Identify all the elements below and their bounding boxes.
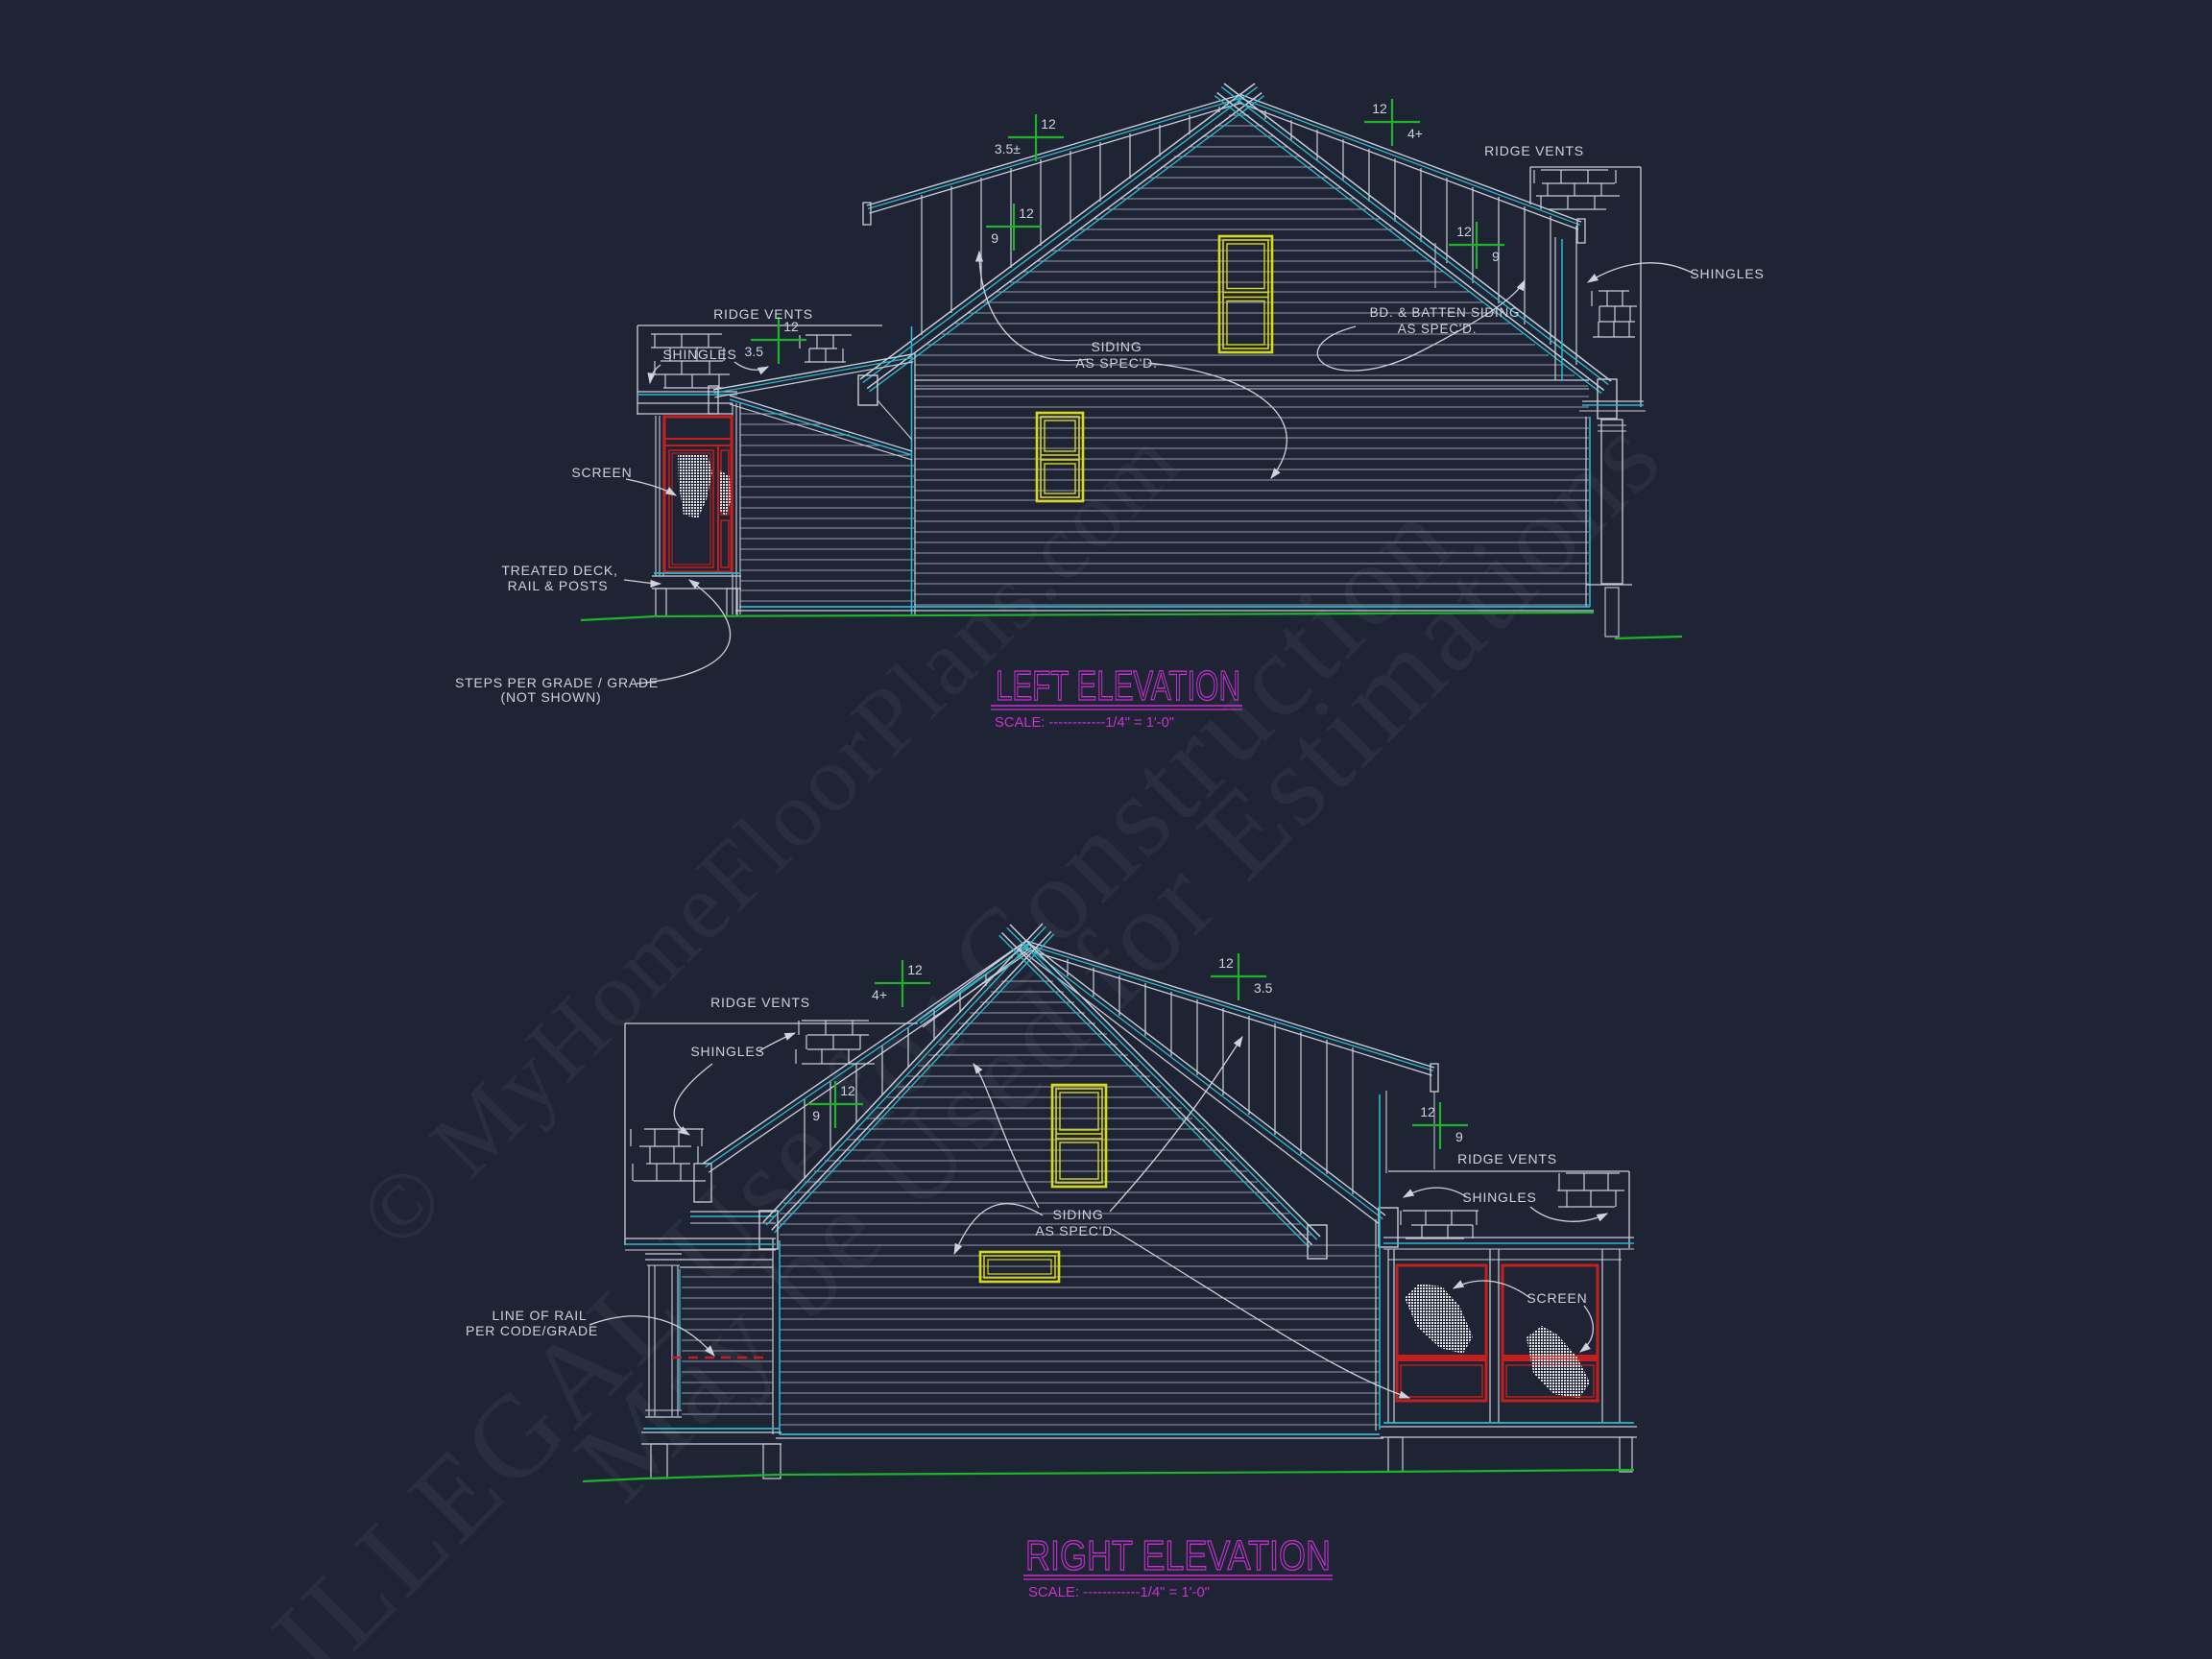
svg-text:SCREEN: SCREEN bbox=[1527, 1290, 1587, 1306]
svg-text:9: 9 bbox=[812, 1108, 820, 1123]
svg-text:RAIL & POSTS: RAIL & POSTS bbox=[508, 578, 609, 593]
svg-text:9: 9 bbox=[1455, 1129, 1463, 1144]
svg-text:RIGHT ELEVATION: RIGHT ELEVATION bbox=[1025, 1532, 1331, 1579]
svg-text:12: 12 bbox=[1019, 205, 1034, 221]
svg-text:12: 12 bbox=[1456, 224, 1472, 239]
svg-text:RIDGE VENTS: RIDGE VENTS bbox=[1484, 143, 1584, 158]
svg-text:AS SPEC'D.: AS SPEC'D. bbox=[1398, 322, 1478, 336]
svg-text:RIDGE VENTS: RIDGE VENTS bbox=[713, 306, 813, 322]
svg-text:AS SPEC'D.: AS SPEC'D. bbox=[1075, 355, 1157, 371]
svg-text:LEFT ELEVATION: LEFT ELEVATION bbox=[996, 662, 1240, 709]
svg-text:LINE OF RAIL: LINE OF RAIL bbox=[492, 1308, 587, 1323]
svg-text:PER CODE/GRADE: PER CODE/GRADE bbox=[466, 1323, 598, 1338]
svg-text:SCREEN: SCREEN bbox=[571, 465, 632, 480]
svg-text:SHINGLES: SHINGLES bbox=[690, 1044, 764, 1059]
svg-text:12: 12 bbox=[840, 1083, 855, 1098]
svg-text:9: 9 bbox=[991, 230, 998, 246]
svg-text:12: 12 bbox=[1372, 101, 1387, 116]
svg-text:3.5±: 3.5± bbox=[995, 141, 1021, 156]
svg-text:RIDGE VENTS: RIDGE VENTS bbox=[1457, 1151, 1557, 1166]
svg-text:TREATED DECK,: TREATED DECK, bbox=[501, 563, 617, 578]
svg-text:AS SPEC'D.: AS SPEC'D. bbox=[1035, 1223, 1117, 1238]
svg-text:(NOT SHOWN): (NOT SHOWN) bbox=[501, 689, 602, 705]
svg-text:3.5: 3.5 bbox=[745, 344, 764, 359]
svg-text:SHINGLES: SHINGLES bbox=[1690, 266, 1764, 281]
svg-text:12: 12 bbox=[1420, 1104, 1435, 1119]
svg-text:SIDING: SIDING bbox=[1091, 339, 1142, 354]
svg-text:RIDGE VENTS: RIDGE VENTS bbox=[710, 995, 810, 1010]
svg-text:12: 12 bbox=[1041, 116, 1056, 132]
svg-text:SCALE: ------------1/4" = 1'-0: SCALE: ------------1/4" = 1'-0" bbox=[995, 714, 1174, 731]
svg-text:SHINGLES: SHINGLES bbox=[1462, 1190, 1536, 1205]
svg-text:SHINGLES: SHINGLES bbox=[662, 347, 736, 362]
svg-text:4+: 4+ bbox=[1407, 126, 1423, 141]
svg-text:4+: 4+ bbox=[872, 987, 887, 1002]
svg-text:3.5: 3.5 bbox=[1254, 980, 1273, 996]
svg-text:SCALE: ------------1/4" = 1'-0: SCALE: ------------1/4" = 1'-0" bbox=[1028, 1584, 1210, 1600]
svg-text:STEPS PER GRADE / GRADE: STEPS PER GRADE / GRADE bbox=[455, 675, 659, 690]
svg-text:12: 12 bbox=[1218, 955, 1234, 971]
svg-text:SIDING: SIDING bbox=[1052, 1207, 1103, 1222]
svg-text:12: 12 bbox=[907, 962, 923, 977]
svg-text:9: 9 bbox=[1492, 249, 1500, 264]
